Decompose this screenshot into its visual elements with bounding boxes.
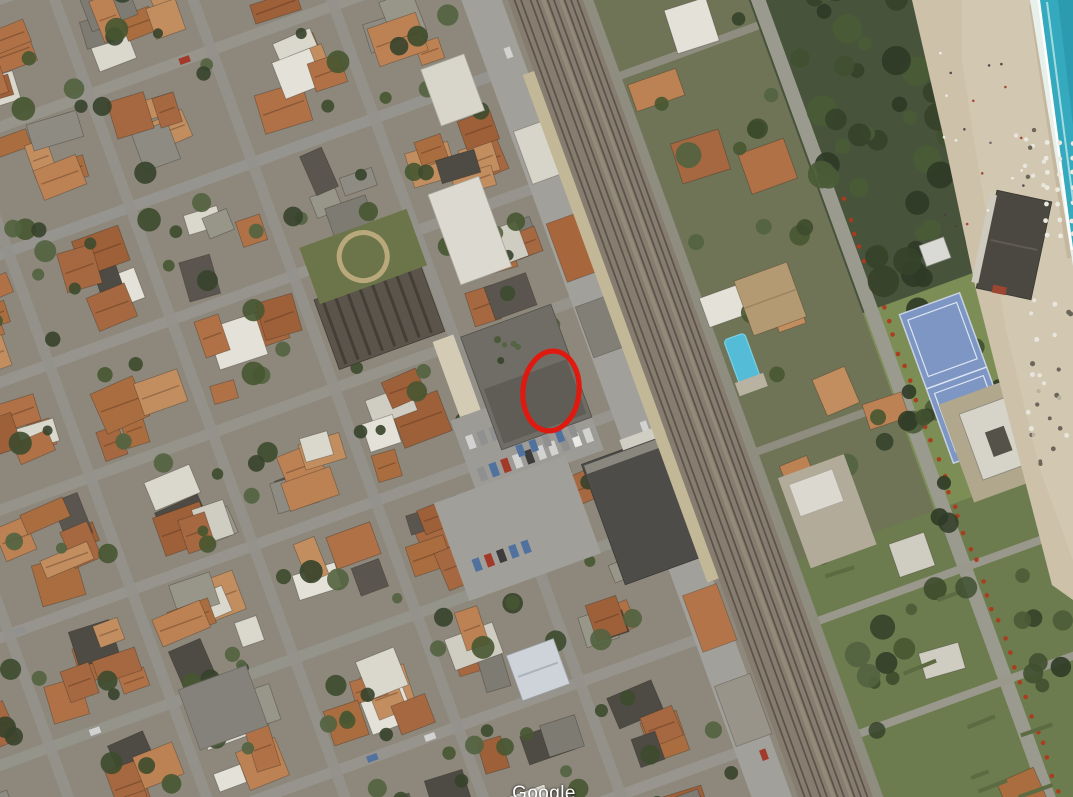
beach-umbrella — [1055, 202, 1060, 207]
beach-umbrella — [1031, 174, 1035, 178]
tree — [1014, 611, 1032, 629]
beach-person — [1011, 177, 1014, 180]
beach-person — [966, 223, 969, 226]
beach-umbrella — [1045, 140, 1050, 145]
beach-person — [939, 52, 942, 55]
beach-umbrella — [1057, 157, 1062, 162]
beach-umbrella — [1044, 202, 1049, 207]
beach-person — [943, 136, 946, 139]
beach-umbrella — [1048, 416, 1052, 420]
beach-person — [988, 64, 991, 67]
beach-person — [945, 94, 948, 97]
beach-person — [987, 209, 990, 212]
beach-umbrella — [1068, 311, 1073, 316]
beach-umbrella — [1057, 367, 1061, 371]
beach-umbrella — [1032, 433, 1036, 437]
beach-umbrella — [1043, 218, 1048, 223]
beach-umbrella — [1038, 459, 1042, 463]
beach-person — [989, 141, 992, 144]
beach-umbrella — [1032, 128, 1036, 132]
beach-umbrella — [1045, 233, 1050, 238]
beach-umbrella — [1030, 361, 1035, 366]
beach-umbrella — [1032, 298, 1036, 302]
beach-umbrella — [1051, 446, 1056, 451]
beach-umbrella — [1036, 389, 1040, 393]
beach-person — [955, 139, 958, 142]
beach-person — [981, 172, 984, 175]
beach-umbrella — [1037, 373, 1041, 377]
google-watermark[interactable]: Google — [504, 783, 584, 797]
beach-umbrella — [1052, 333, 1057, 338]
tree — [1051, 657, 1071, 677]
beach-umbrella — [1023, 164, 1027, 168]
beach-person — [1000, 63, 1003, 66]
beach-umbrella — [1028, 146, 1032, 150]
beach-umbrella — [1057, 140, 1062, 145]
beach-umbrella — [1058, 426, 1063, 431]
beach-person — [963, 128, 966, 131]
beach-umbrella — [1030, 372, 1035, 377]
beach-person — [1022, 184, 1025, 187]
beach-umbrella — [1034, 337, 1039, 342]
beach-umbrella — [1042, 381, 1046, 385]
beach-umbrella — [1064, 433, 1069, 438]
beach-umbrella — [1035, 402, 1039, 406]
beach-umbrella — [1026, 175, 1030, 179]
beach-person — [972, 99, 975, 102]
beach-umbrella — [1041, 183, 1045, 187]
satellite-map-viewport[interactable]: Google — [0, 0, 1073, 797]
beach-umbrella — [1029, 426, 1034, 431]
beach-umbrella — [1029, 311, 1033, 315]
beach-person — [1004, 86, 1007, 89]
beach-umbrella — [1057, 217, 1062, 222]
beach-umbrella — [1045, 170, 1050, 175]
beach-umbrella — [1042, 160, 1046, 164]
rotated-town-grid — [0, 0, 1073, 797]
tree — [1023, 663, 1043, 683]
beach-person — [1020, 137, 1023, 140]
beach-umbrella — [1024, 137, 1028, 141]
beach-umbrella — [1058, 234, 1063, 239]
satellite-imagery — [0, 0, 1073, 797]
beach-umbrella — [1026, 410, 1031, 415]
beach-umbrella — [1052, 302, 1057, 307]
beach-umbrella — [1057, 172, 1062, 177]
beach-person — [954, 225, 957, 228]
beach-person — [1020, 169, 1023, 172]
beach-umbrella — [1057, 396, 1061, 400]
beach-umbrella — [1055, 187, 1060, 192]
beach-person — [944, 214, 947, 217]
beach-umbrella — [1014, 133, 1018, 137]
beach-person — [949, 72, 952, 75]
